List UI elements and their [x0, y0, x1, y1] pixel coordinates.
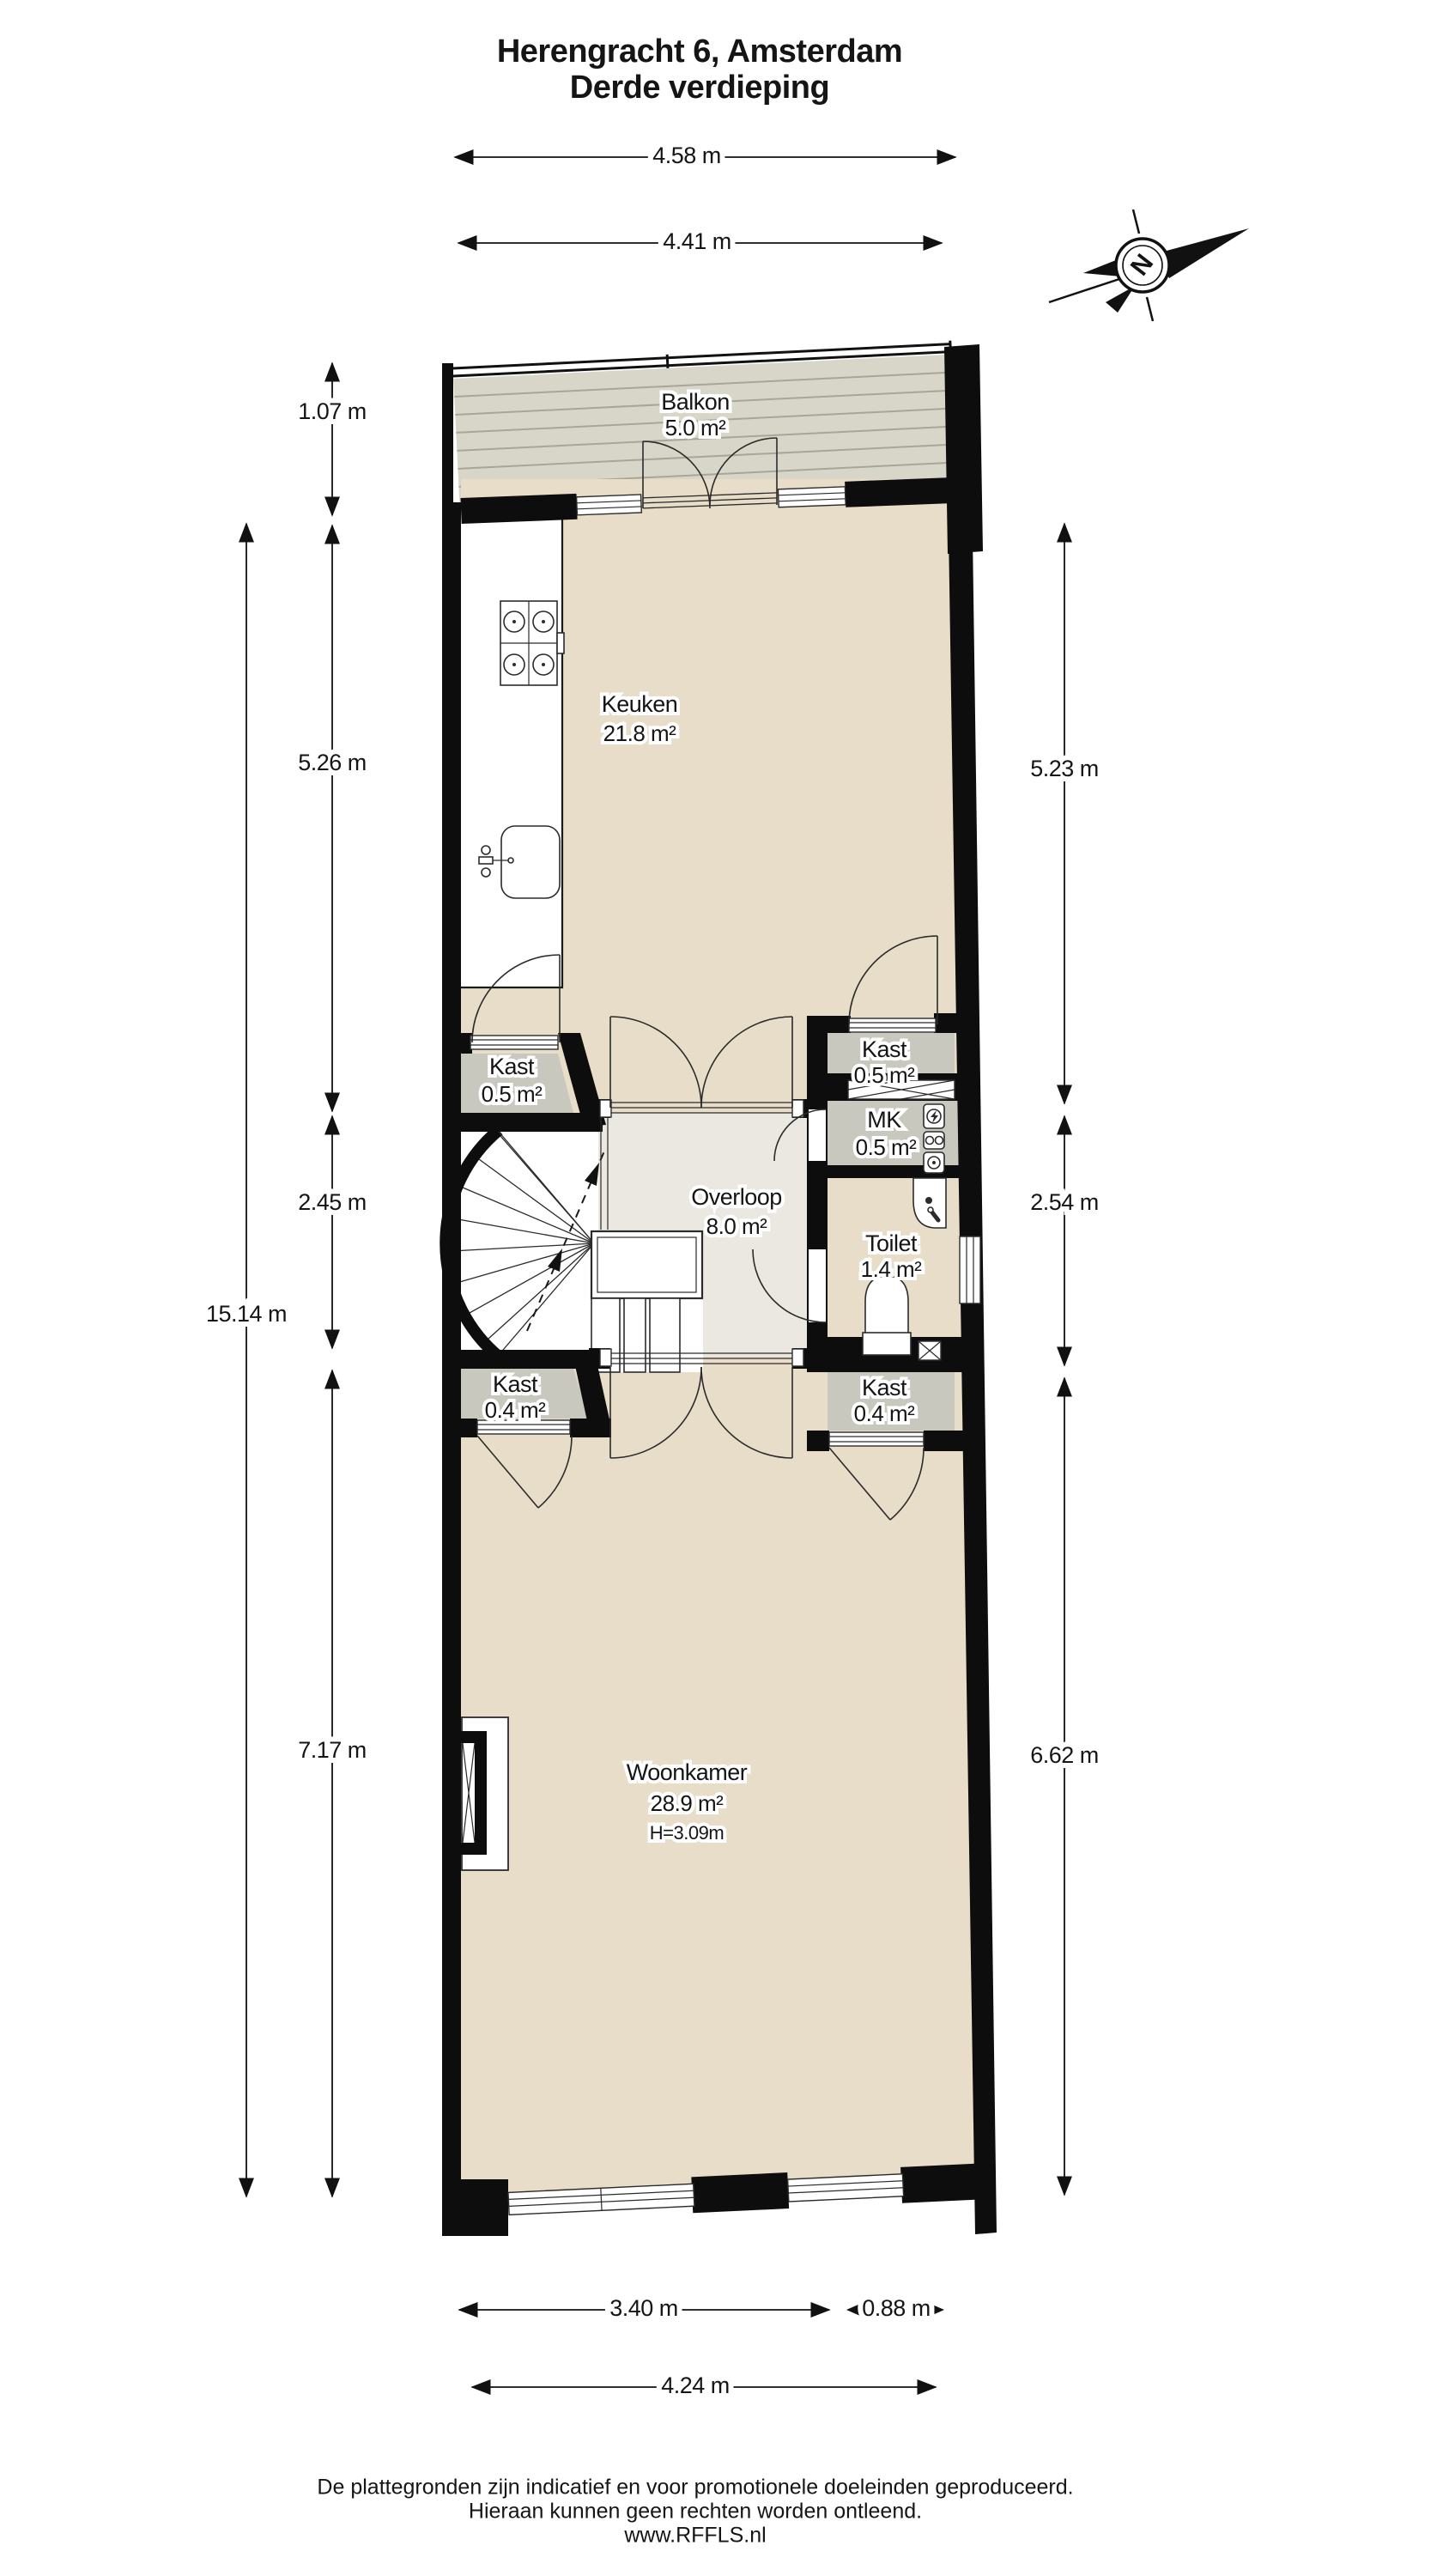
toilet-icon [863, 1276, 911, 1355]
dim-right-3: 6.62 m [1030, 1742, 1099, 1768]
dim-right-2: 2.54 m [1030, 1189, 1099, 1215]
dim-left-3: 2.45 m [298, 1189, 367, 1215]
kitchen-counter [461, 515, 562, 987]
door-panel-kast-tr [849, 1018, 936, 1032]
wall-bottom-left-post [442, 2179, 508, 2236]
label-kast-tl: Kast [489, 1054, 535, 1079]
dim-top-1: 4.58 m [652, 143, 721, 168]
label-overloop-area: 8.0 m² [706, 1213, 768, 1239]
dim-left-4: 7.17 m [298, 1737, 367, 1763]
toilet-basin-icon [913, 1178, 946, 1228]
window-woonkamer-right [788, 2174, 904, 2202]
fireplace-icon [461, 1717, 508, 1870]
dim-top-2: 4.41 m [663, 228, 731, 254]
label-kast-br: Kast [862, 1375, 907, 1400]
door-panel-kast-br [829, 1432, 924, 1446]
page-title-line1: Herengracht 6, Amsterdam [497, 33, 902, 70]
footer-line3: www.RFFLS.nl [623, 2524, 766, 2548]
dim-left-1: 1.07 m [298, 398, 367, 424]
label-mk-area: 0.5 m² [856, 1134, 918, 1160]
compass-icon: N [1049, 210, 1249, 321]
label-woonkamer-area: 28.9 m² [651, 1790, 724, 1816]
wall-right-balcony-post [944, 344, 983, 554]
wall-left [442, 502, 461, 2236]
door-opening-toilet [809, 1249, 826, 1322]
label-balkon-area: 5.0 m² [665, 415, 727, 440]
label-kast-tl-area: 0.5 m² [482, 1081, 543, 1107]
label-kast-bl-area: 0.4 m² [485, 1397, 547, 1423]
label-mk: MK [867, 1107, 901, 1133]
floorplan-svg: Herengracht 6, Amsterdam Derde verdiepin… [0, 0, 1449, 2576]
wall-left-post [442, 363, 453, 518]
label-keuken-area: 21.8 m² [603, 720, 676, 746]
window-balcony-right [778, 487, 846, 507]
vent-box [919, 1341, 941, 1360]
label-toilet-area: 1.4 m² [861, 1256, 923, 1282]
dim-bottom-1: 3.40 m [609, 2295, 678, 2321]
dim-bottom-3: 4.24 m [661, 2372, 730, 2398]
label-keuken: Keuken [602, 691, 678, 717]
dim-left-5: 15.14 m [206, 1301, 287, 1327]
footer-line1: De plattegronden zijn indicatief en voor… [317, 2476, 1073, 2500]
door-panel-kast-tl [470, 1036, 558, 1049]
window-balcony-left [577, 495, 642, 515]
dim-bottom-2: 0.88 m [862, 2295, 931, 2321]
label-kast-bl: Kast [493, 1371, 538, 1397]
footer-line2: Hieraan kunnen geen rechten worden ontle… [469, 2500, 922, 2524]
meter-icons [924, 1104, 944, 1173]
wall-stair-top [442, 1113, 603, 1132]
label-balkon: Balkon [661, 389, 730, 415]
label-woonkamer: Woonkamer [627, 1759, 748, 1785]
door-opening-mk [809, 1109, 826, 1161]
label-toilet: Toilet [865, 1230, 918, 1256]
wall-bottom-pier [691, 2172, 789, 2213]
label-kast-tr-area: 0.5 m² [854, 1062, 916, 1088]
dim-left-2: 5.26 m [298, 750, 367, 775]
page-title-line2: Derde verdieping [570, 70, 829, 106]
label-kast-br-area: 0.4 m² [854, 1400, 916, 1426]
floorplan-page: Herengracht 6, Amsterdam Derde verdiepin… [0, 0, 1449, 2576]
dim-right-1: 5.23 m [1030, 756, 1099, 781]
window-toilet [960, 1236, 980, 1303]
label-overloop: Overloop [691, 1184, 782, 1210]
stove-icon [500, 601, 564, 685]
label-woonkamer-height: H=3.09m [650, 1822, 724, 1844]
label-kast-tr: Kast [862, 1036, 907, 1062]
